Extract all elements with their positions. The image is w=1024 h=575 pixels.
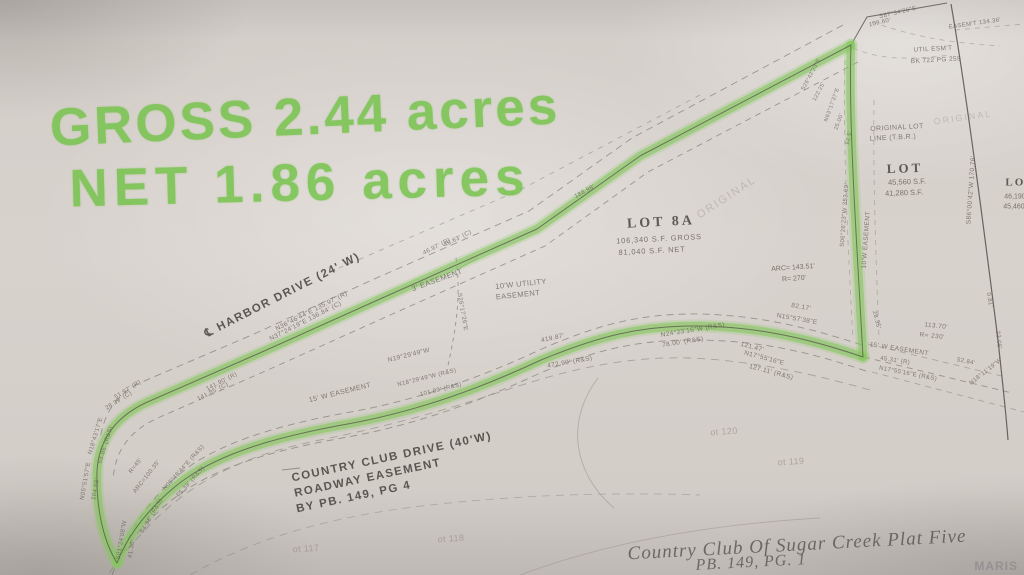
edge-lot-name: LOT: [1005, 178, 1024, 189]
adjacent-lot-name: LOT: [887, 161, 924, 175]
map-label: ot 120: [710, 427, 738, 438]
edge-lot-sf1: 46,190 S.F.: [1004, 194, 1024, 201]
plat-map-photo: N36°46'44"E 135.97' (R)N37°24'19"E 136.8…: [0, 0, 1024, 575]
handwritten-net-acres: NET 1.86 acres: [69, 150, 531, 215]
edge-lot-sf2: 45,460 S.F.: [1003, 204, 1024, 211]
adjacent-lot-sf1: 45,560 S.F.: [888, 178, 926, 187]
maris-watermark: MARIS: [974, 560, 1018, 572]
adjacent-lot-sf2: 41,280 S.F.: [885, 189, 923, 198]
map-label: ot 117: [292, 544, 319, 555]
map-label: ot 118: [437, 534, 464, 545]
map-label: ot 119: [777, 457, 804, 468]
